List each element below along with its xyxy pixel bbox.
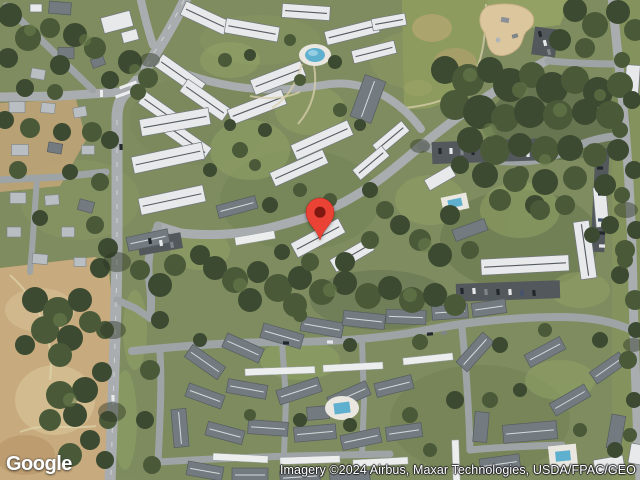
- map-attribution: Imagery ©2024 Airbus, Maxar Technologies…: [280, 463, 636, 477]
- location-pin-icon[interactable]: [305, 197, 335, 241]
- google-logo[interactable]: Google: [6, 453, 72, 476]
- satellite-map[interactable]: Google Imagery ©2024 Airbus, Maxar Techn…: [0, 0, 640, 480]
